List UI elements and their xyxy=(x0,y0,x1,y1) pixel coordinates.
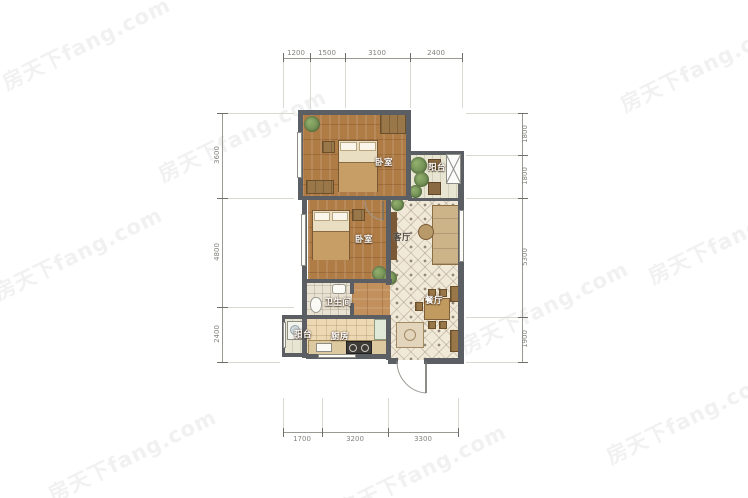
room-label-balcony-top: 阳台 xyxy=(424,163,450,173)
watermark-text: 房天下fang.com xyxy=(0,0,175,97)
dim-tick xyxy=(517,317,528,318)
wall xyxy=(300,110,410,115)
dim-tick xyxy=(388,427,389,437)
watermark-text: 房天下fang.com xyxy=(643,183,748,291)
bedroom-door-arc xyxy=(364,200,385,221)
dim-tick xyxy=(217,307,228,308)
blanket xyxy=(313,231,349,260)
dim-tick xyxy=(458,427,459,437)
watermark-text: 房天下fang.com xyxy=(615,11,748,119)
dim-extension xyxy=(388,398,389,428)
plant-icon xyxy=(304,116,320,132)
wall xyxy=(424,358,464,364)
sofa xyxy=(432,205,459,265)
dim-line-left xyxy=(222,113,223,362)
dim-label: 3200 xyxy=(340,435,370,443)
burner-icon xyxy=(361,344,369,352)
watermark-text: 房天下fang.com xyxy=(601,363,748,471)
rug-ornament xyxy=(404,329,416,341)
room-label-bathroom: 卫生间 xyxy=(320,298,356,308)
dim-tick xyxy=(517,155,528,156)
dim-label: 1500 xyxy=(312,49,342,57)
dim-extension xyxy=(228,362,280,363)
room-label-balcony-bottom: 阳台 xyxy=(291,330,315,340)
dim-label: 5300 xyxy=(521,242,529,272)
dim-line-bottom xyxy=(283,432,458,433)
dim-label: 2400 xyxy=(421,49,451,57)
dim-extension xyxy=(345,62,346,108)
kitchen-sink xyxy=(316,343,332,352)
wall xyxy=(350,281,354,294)
dim-extension xyxy=(466,317,518,318)
room-label-bedroom-left: 卧室 xyxy=(350,235,378,245)
wall xyxy=(302,196,412,200)
wall xyxy=(408,198,460,201)
wall xyxy=(304,279,392,283)
dim-tick xyxy=(517,198,528,199)
dim-label: 2400 xyxy=(213,319,221,349)
dim-extension xyxy=(228,307,294,308)
watermark-text: 房天下fang.com xyxy=(43,401,222,498)
burner-icon xyxy=(349,344,357,352)
window xyxy=(301,214,306,266)
dim-extension xyxy=(466,155,518,156)
window xyxy=(283,322,286,348)
floorplan-image: 房天下fang.com 房天下fang.com 房天下fang.com 房天下f… xyxy=(0,0,748,498)
dining-chair xyxy=(428,321,436,329)
dim-label: 3300 xyxy=(408,435,438,443)
entry-door-arc xyxy=(394,360,428,394)
dim-label: 3600 xyxy=(213,140,221,170)
dim-extension xyxy=(466,362,518,363)
room-corridor xyxy=(352,281,390,318)
dim-extension xyxy=(310,62,311,108)
dim-extension xyxy=(410,62,411,108)
dim-extension xyxy=(228,198,294,199)
planter-pot xyxy=(428,182,441,195)
watermark-text: 房天下fang.com xyxy=(333,416,512,498)
room-label-kitchen: 厨房 xyxy=(328,332,352,342)
dim-label: 1700 xyxy=(287,435,317,443)
pillow xyxy=(314,212,330,221)
dim-label: 4800 xyxy=(213,237,221,267)
window xyxy=(297,132,302,178)
wardrobe xyxy=(380,114,406,134)
dim-tick xyxy=(517,113,528,114)
dim-extension xyxy=(322,398,323,428)
wall xyxy=(282,353,308,357)
watermark-text: 房天下fang.com xyxy=(455,253,634,361)
room-label-bedroom-top: 卧室 xyxy=(370,158,398,168)
dim-tick xyxy=(283,427,284,437)
room-label-dining: 餐厅 xyxy=(422,296,446,306)
wall xyxy=(406,110,411,200)
dim-label: 3100 xyxy=(362,49,392,57)
dim-label: 1800 xyxy=(521,119,529,149)
dim-extension xyxy=(228,113,294,114)
dresser xyxy=(306,180,334,194)
dim-extension xyxy=(458,398,459,428)
dim-label: 1800 xyxy=(521,161,529,191)
dim-tick xyxy=(217,113,228,114)
dim-extension xyxy=(466,113,518,114)
coffee-table xyxy=(418,224,434,240)
dining-chair xyxy=(439,321,447,329)
pillow xyxy=(332,212,348,221)
watermark-text: 房天下fang.com xyxy=(0,199,167,307)
dim-extension xyxy=(283,62,284,108)
room-label-living: 客厅 xyxy=(390,233,414,243)
dim-tick xyxy=(217,362,228,363)
dim-extension xyxy=(466,198,518,199)
dim-extension xyxy=(283,398,284,428)
wall xyxy=(282,315,306,319)
dim-label: 1200 xyxy=(281,49,311,57)
wall xyxy=(306,315,390,319)
dim-label: 1900 xyxy=(521,324,529,354)
dim-tick xyxy=(322,427,323,437)
pillow xyxy=(359,142,376,151)
dim-tick xyxy=(217,198,228,199)
window xyxy=(459,210,464,262)
dim-tick xyxy=(517,362,528,363)
dim-extension xyxy=(462,62,463,108)
nightstand xyxy=(322,141,335,153)
window xyxy=(318,354,356,358)
pillow xyxy=(340,142,357,151)
bathroom-sink xyxy=(332,284,346,294)
